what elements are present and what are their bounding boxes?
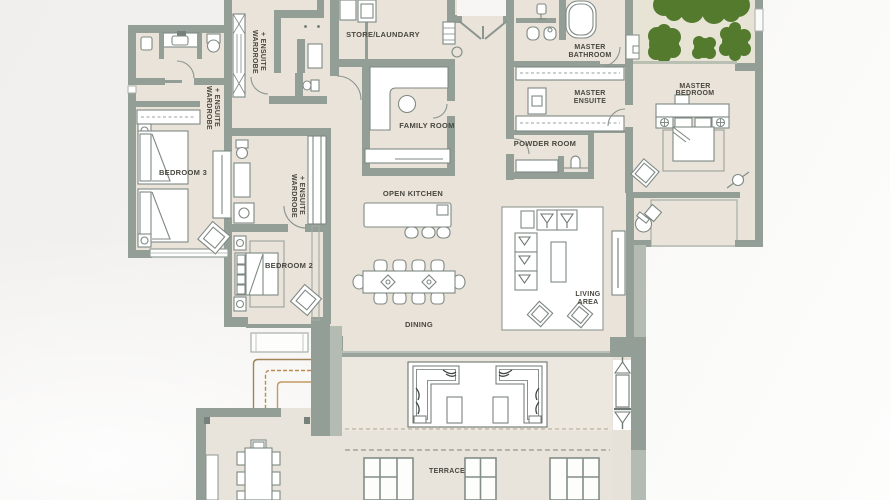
svg-text:FAMILY ROOM: FAMILY ROOM [399,121,454,130]
svg-text:+ ENSUITE: + ENSUITE [213,88,220,127]
svg-text:MASTER: MASTER [679,83,710,90]
svg-text:AREA: AREA [577,299,598,306]
svg-text:+ ENSUITE: + ENSUITE [259,32,266,71]
svg-text:WARDROBE: WARDROBE [290,174,297,218]
svg-text:TERRACE: TERRACE [429,468,465,475]
svg-text:MASTER: MASTER [574,44,605,51]
svg-text:BATHROOM: BATHROOM [568,52,611,59]
svg-text:WARDROBE: WARDROBE [205,86,212,130]
svg-text:BEDROOM 3: BEDROOM 3 [159,168,207,177]
svg-text:BEDROOM 2: BEDROOM 2 [265,261,313,270]
svg-text:MASTER: MASTER [574,90,605,97]
svg-text:BEDROOM: BEDROOM [676,90,715,97]
svg-text:STORE/LAUNDARY: STORE/LAUNDARY [346,30,420,39]
svg-text:WARDROBE: WARDROBE [251,30,258,74]
svg-text:LIVING: LIVING [575,291,600,298]
svg-text:+ ENSUITE: + ENSUITE [298,176,305,215]
svg-text:ENSUITE: ENSUITE [574,98,606,105]
svg-text:DINING: DINING [405,320,433,329]
svg-text:POWDER ROOM: POWDER ROOM [514,139,576,148]
svg-text:OPEN KITCHEN: OPEN KITCHEN [383,189,443,198]
